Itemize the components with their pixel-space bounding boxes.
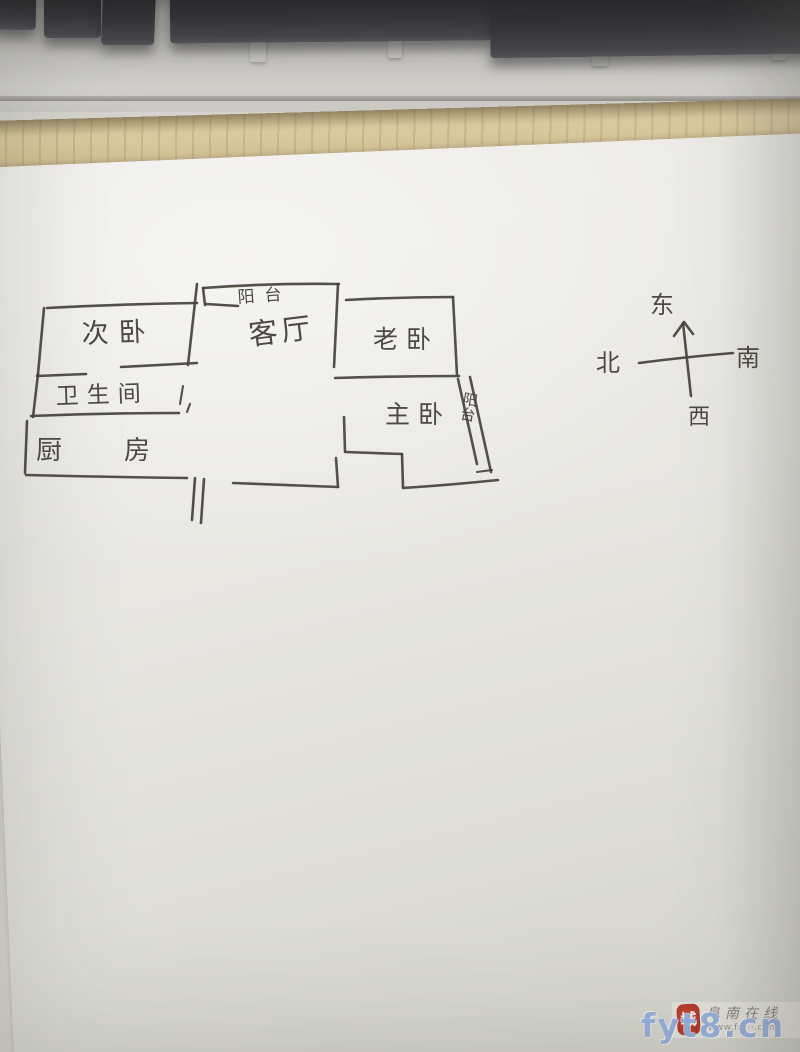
photo-of-floor-plan-sketch: 阳台 次卧 卫生间 厨房 客厅 老卧 主卧 阳台 东 北 南 西 城 阜南在线 …: [0, 0, 800, 1052]
compass-vertical-line: [683, 323, 691, 396]
compass-label-down: 西: [688, 405, 710, 430]
label-kitchen: 厨房: [36, 436, 212, 466]
label-balcony-east: 阳台: [457, 391, 480, 424]
compass: 东 北 南 西: [596, 291, 760, 430]
compass-label-up: 东: [650, 291, 674, 319]
watermark-overlay-text: fyt8.cn: [641, 1006, 800, 1045]
compass-label-left: 北: [596, 349, 620, 377]
label-living-room: 客厅: [247, 310, 317, 352]
bathroom-door-tick: [187, 404, 190, 412]
entrance-door-marks: [192, 478, 204, 523]
bathroom-door-tick: [180, 386, 183, 404]
label-bathroom: 卫生间: [55, 381, 149, 410]
floor-plan-sketch: 阳台 次卧 卫生间 厨房 客厅 老卧 主卧 阳台 东 北 南 西: [0, 0, 800, 1052]
label-master-bedroom: 主卧: [385, 400, 451, 429]
label-upper-right-bedroom: 老卧: [373, 325, 439, 354]
label-secondary-bedroom: 次卧: [81, 316, 156, 350]
compass-label-right: 南: [736, 344, 760, 372]
label-balcony-north: 阳台: [237, 284, 292, 308]
